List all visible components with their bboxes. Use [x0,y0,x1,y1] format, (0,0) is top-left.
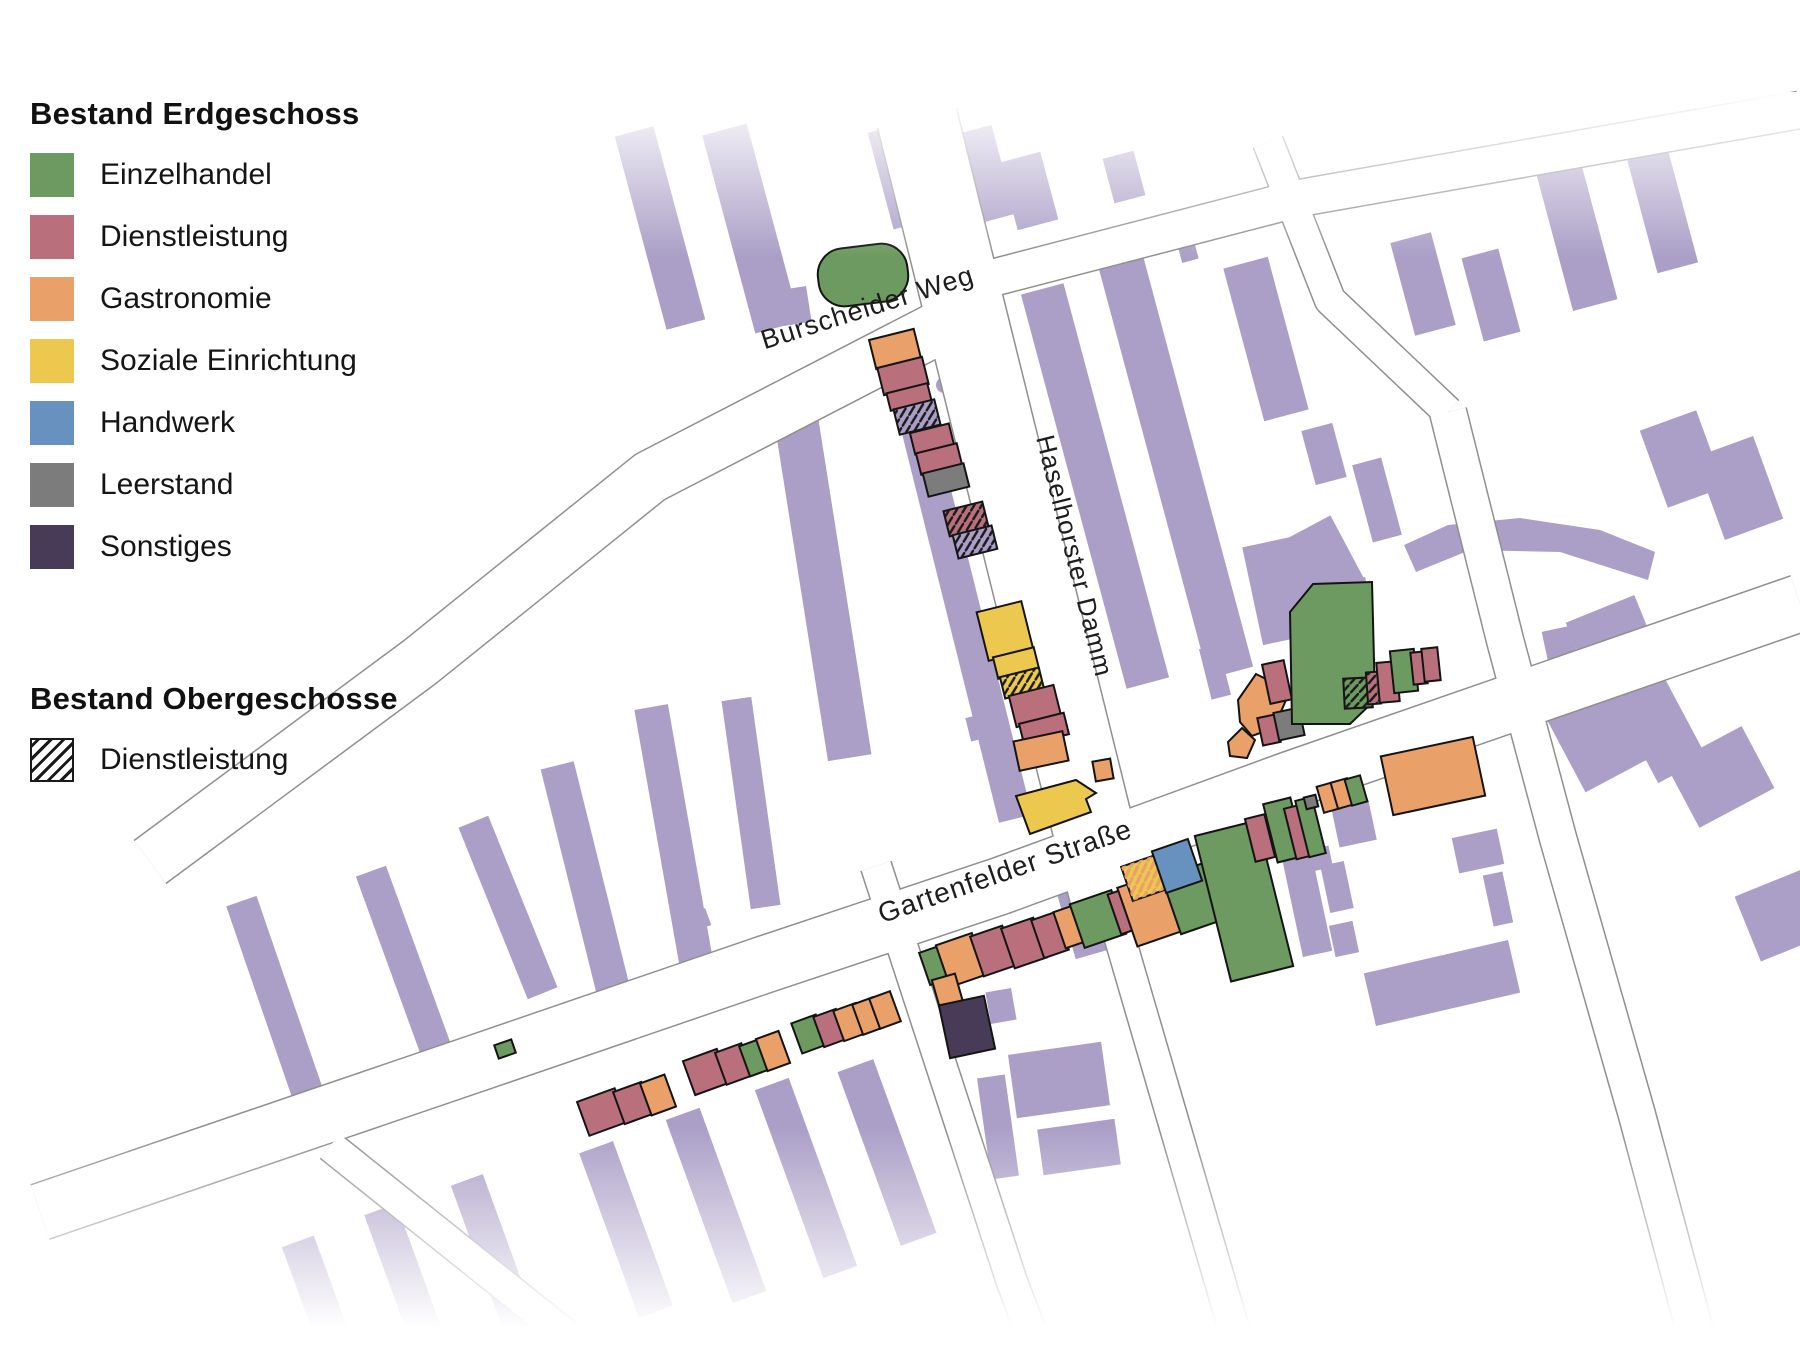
residential-building [1320,861,1353,913]
top-fade-overlay [520,92,1800,257]
residential-building [1452,829,1504,874]
map-page: Burscheider WegHaselhorster DammGartenfe… [0,0,1800,1350]
residential-building [1735,869,1800,962]
gastronomie-swatch-icon [30,277,74,321]
residential-building [459,816,558,1000]
residential-building [226,896,330,1119]
sonstiges-swatch-icon [30,525,74,569]
einzelhandel-swatch-icon [30,153,74,197]
residential-building [1223,257,1308,422]
legend-item-label: Sonstiges [100,530,232,564]
leerstand-swatch-icon [30,463,74,507]
residential-building [985,988,1016,1024]
legend-item-label: Handwerk [100,406,235,440]
legend-item-handwerk: Handwerk [30,400,490,445]
residential-building [1352,457,1402,542]
residential-building [1462,249,1521,342]
building-sonstiges [939,996,995,1058]
bottom-fade-overlay [0,1128,1800,1350]
map-legend: Bestand Erdgeschoss Einzelhandel Dienstl… [30,96,490,799]
legend-title-erdgeschoss: Bestand Erdgeschoss [30,96,490,132]
building-dienstleistung [1421,647,1440,681]
dienstleistung-swatch-icon [30,215,74,259]
residential-building [1329,921,1359,957]
residential-building [1301,423,1346,485]
residential-building [356,866,456,1070]
legend-item-label: Dienstleistung [100,743,288,777]
residential-building [634,704,715,981]
residential-building [1008,1042,1110,1118]
residential-building [722,697,781,909]
legend-item-gastronomie: Gastronomie [30,276,490,321]
legend-item-label: Einzelhandel [100,158,272,192]
legend-item-sonstiges: Sonstiges [30,524,490,569]
residential-building [1364,940,1520,1026]
legend-item-og-dienstleistung: Dienstleistung [30,737,490,782]
legend-item-label: Dienstleistung [100,220,288,254]
building-gastronomie [1092,759,1113,782]
legend-item-dienstleistung: Dienstleistung [30,214,490,259]
legend-title-obergeschosse: Bestand Obergeschosse [30,681,490,717]
legend-item-label: Leerstand [100,468,233,502]
residential-building [1404,518,1655,580]
legend-item-soziale-einrichtung: Soziale Einrichtung [30,338,490,383]
handwerk-swatch-icon [30,401,74,445]
soziale-einrichtung-swatch-icon [30,339,74,383]
residential-building [541,761,630,992]
legend-item-leerstand: Leerstand [30,462,490,507]
residential-building [1483,871,1513,926]
legend-item-einzelhandel: Einzelhandel [30,152,490,197]
legend-item-label: Soziale Einrichtung [100,344,357,378]
building-leerstand [1304,795,1319,810]
legend-item-label: Gastronomie [100,282,272,316]
dienstleistung-hatch-swatch-icon [30,738,74,782]
